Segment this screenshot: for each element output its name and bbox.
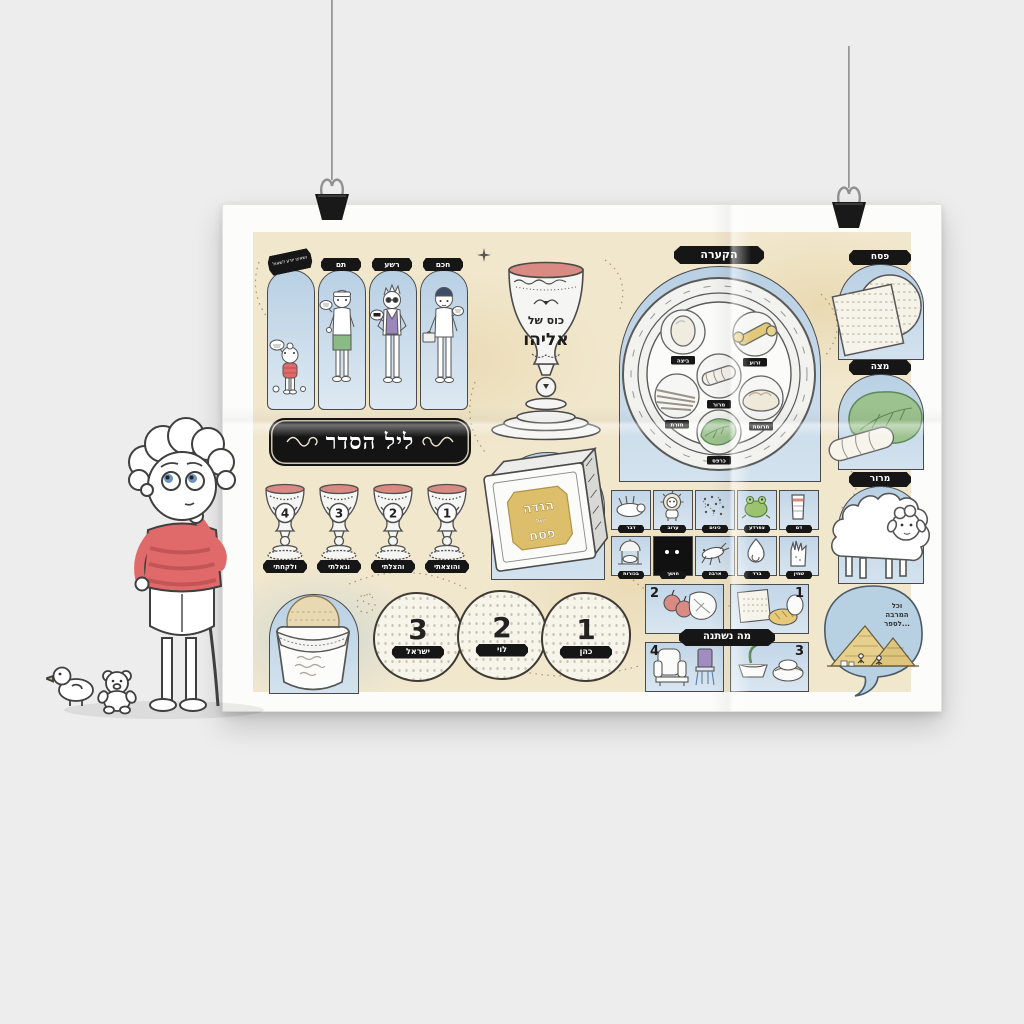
plate-food-label-egg: ביצה [677, 359, 690, 365]
matzah-label-tag: כהן [560, 646, 612, 659]
cup-label-text: וגאלתי [328, 563, 350, 571]
cup-2: 2 והצלתי [369, 480, 417, 576]
plague-label: בכורות [623, 572, 639, 577]
matzah-label-tag: לוי [476, 644, 528, 657]
haggadah-book: הגדה של פסח [477, 440, 617, 582]
son-baby-figure [268, 271, 311, 406]
cup-2-label: והצלתי [371, 560, 415, 573]
frog-icon [738, 491, 774, 523]
haggadah-title-line2: של [535, 516, 546, 525]
elijah-cup: כוס של אליהו [486, 252, 606, 450]
son-label-text: תם [336, 261, 346, 269]
plague-firstborn: בכורות [611, 536, 651, 576]
wine-cup-icon: 1 [423, 480, 471, 562]
ma-nishtana-number: 3 [795, 644, 804, 659]
matzah-1-kohen: 1 כהן [541, 592, 631, 682]
ma-nishtana-section: 2 1 4 3 מה נשתנה [645, 584, 809, 692]
ma-nishtana-cell-3: 3 [730, 642, 809, 692]
cup-1: 1 והוצאתי [423, 480, 471, 576]
cup-3: 3 וגאלתי [315, 480, 363, 576]
ma-nishtana-number: 2 [650, 586, 659, 601]
son-panel-wise [420, 270, 468, 410]
plague-label: שחין [794, 572, 804, 577]
four-cups-section: 4 ולקחתי [261, 480, 473, 578]
plate-food-label-charoset: חרוסת [753, 425, 770, 431]
cup-3-label: וגאלתי [317, 560, 361, 573]
plague-blood: דם [779, 490, 819, 530]
plague-label: חושך [667, 572, 679, 577]
plague-pestilence: דבר [611, 490, 651, 530]
hanging-string-right [848, 46, 850, 188]
cup-label-text: ולקחתי [273, 563, 296, 571]
binder-clip-right [826, 180, 872, 232]
matzah-label-tag: ישראל [392, 646, 444, 659]
plate-food-label-karpas: כרפס [712, 459, 726, 465]
plague-frogs: צפרדע [737, 490, 777, 530]
plate-food-label-maror: מרור [713, 403, 726, 409]
item-tag-maror: מרור [849, 472, 911, 487]
matzah-label-text: כהן [580, 648, 593, 656]
matzah-3-yisrael: 3 ישראל [373, 592, 463, 682]
plague-boils: שחין [779, 536, 819, 576]
matzah-stack-icon [824, 262, 936, 364]
poster: ושאינו יודע לשאול תם רשע חכם ליל הסדר [222, 204, 942, 712]
hand-icon [780, 537, 816, 569]
plague-label: ברד [753, 572, 762, 577]
son-simple-figure [319, 271, 362, 406]
plaque-swirl-left [285, 432, 319, 452]
wine-cup-icon: 3 [315, 480, 363, 562]
cup-number: 4 [281, 507, 289, 521]
pyramids-speech-bubble: וכל המרבה לספר... [815, 582, 935, 702]
item-tag-text: מצה [871, 363, 890, 372]
cup-number: 2 [389, 507, 397, 521]
crib-canopy-icon [612, 537, 648, 569]
plate-food-label-bone: זרוע [749, 361, 760, 367]
son-label-wise: חכם [423, 258, 463, 271]
ma-nishtana-title-tag: מה נשתנה [679, 629, 775, 646]
matzah-2-levi: 2 לוי [457, 590, 547, 680]
ten-plagues-grid: דבר ערוב כינים צפרדע דם [611, 490, 821, 582]
cup-label-text: והוצאתי [434, 563, 460, 571]
three-matzot-section: 3 ישראל 2 לוי 1 כהן [373, 590, 629, 682]
plague-label: דבר [627, 526, 636, 531]
seder-plate-block: הקערה ביצה [617, 246, 821, 480]
locust-icon [696, 537, 732, 569]
ma-nishtana-number: 4 [650, 644, 659, 659]
item-tag-text: מרור [870, 475, 890, 484]
son-panel-simple [318, 270, 366, 410]
plague-label: ארבה [708, 572, 721, 577]
darkness-eyes-icon [654, 537, 690, 571]
plague-label: צפרדע [749, 526, 765, 531]
elijah-cup-text-line2: אליהו [523, 330, 568, 350]
poster-title: ליל הסדר [326, 429, 415, 455]
plague-label: כינים [709, 526, 721, 531]
poster-artwork: ושאינו יודע לשאול תם רשע חכם ליל הסדר [253, 232, 911, 692]
plague-label: ערוב [667, 526, 678, 531]
blood-cup-icon [780, 491, 816, 523]
plague-lice: כינים [695, 490, 735, 530]
ma-nishtana-title: מה נשתנה [703, 632, 751, 643]
ma-nishtana-cell-2: 2 [645, 584, 724, 634]
seder-plate-title: הקערה [700, 249, 737, 261]
lice-swarm-icon [696, 491, 732, 523]
speech-bubble-icon [320, 301, 332, 310]
seder-plate: ביצה זרוע [619, 272, 819, 480]
bubble-text-line1: וכל [892, 602, 903, 610]
title-plaque: ליל הסדר [269, 418, 471, 466]
son-wise-figure [421, 271, 464, 406]
pesach-matzah-maror-column: פסח מצה [824, 250, 938, 584]
ma-nishtana-number: 1 [795, 586, 804, 601]
son-label-text: חכם [436, 261, 451, 269]
son-label-simple: תם [321, 258, 361, 271]
wine-cup-icon: 2 [369, 480, 417, 562]
cup-label-text: והצלתי [382, 563, 405, 571]
seder-plate-title-tag: הקערה [674, 246, 764, 264]
plaque-swirl-right [421, 432, 455, 452]
son-wicked-figure [370, 271, 413, 406]
matzah-label-text: ישראל [406, 648, 430, 656]
boy-figure [129, 418, 235, 711]
ma-nishtana-cell-1: 1 [730, 584, 809, 634]
lion-icon [654, 491, 690, 523]
haggadah-block: הגדה של פסח [481, 446, 615, 578]
cup-number: 3 [335, 507, 343, 521]
plate-food-label-chazeret: חזרת [670, 423, 683, 429]
son-label-text: ושאינו יודע לשאול [272, 256, 307, 268]
matzah-number: 1 [576, 616, 595, 644]
matzah-number: 3 [408, 616, 427, 644]
cup-1-label: והוצאתי [425, 560, 469, 573]
bubble-text-line2: המרבה [885, 611, 908, 619]
cartoon-boy-with-toys [46, 388, 276, 724]
son-panel-wicked [369, 270, 417, 410]
plague-label: דם [796, 526, 802, 531]
duck-toy [46, 668, 93, 707]
item-tag-matzah: מצה [849, 360, 911, 375]
wall-scene: ושאינו יודע לשאול תם רשע חכם ליל הסדר [0, 0, 1024, 1024]
matzah-number: 2 [492, 614, 511, 642]
hail-fireball-icon [738, 537, 774, 569]
dead-cow-icon [612, 491, 648, 521]
plague-hail: ברד [737, 536, 777, 576]
four-sons-section: ושאינו יודע לשאול תם רשע חכם [267, 256, 473, 412]
plague-locusts: ארבה [695, 536, 735, 576]
item-tag-text: פסח [871, 253, 889, 262]
cup-number: 1 [443, 507, 451, 521]
afikoman-block [267, 588, 361, 692]
bubble-text-line3: לספר... [884, 620, 910, 628]
son-label-wicked: רשע [372, 258, 412, 271]
speech-bubble-icon [453, 307, 464, 316]
hanging-string-left [331, 0, 333, 180]
sheep-icon [824, 486, 936, 584]
afikoman-bag [267, 588, 359, 692]
elijah-cup-text-line1: כוס של [528, 314, 564, 327]
binder-clip-left [309, 172, 355, 224]
son-label-text: רשע [384, 261, 399, 269]
matzah-label-text: לוי [497, 646, 507, 654]
plague-darkness: חושך [653, 536, 693, 576]
lettuce-horseradish-icon [824, 376, 936, 472]
ma-nishtana-cell-4: 4 [645, 642, 724, 692]
plague-wild-beasts: ערוב [653, 490, 693, 530]
